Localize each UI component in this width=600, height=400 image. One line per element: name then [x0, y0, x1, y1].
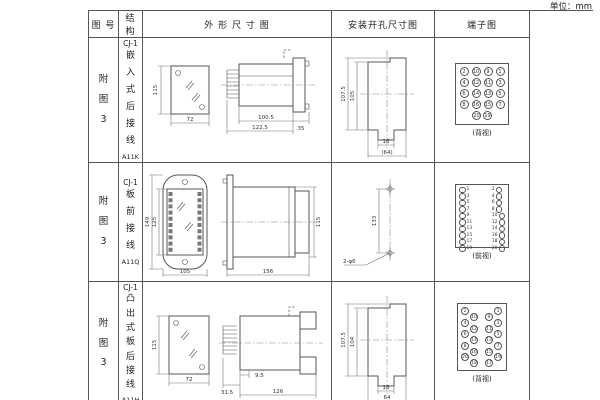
dim-inner-height: 125 — [152, 216, 158, 227]
terminal-pin: 5 — [496, 89, 505, 98]
cutout-drawing-a11k: 107.5 105 16 (64) — [332, 38, 434, 162]
dim-front-width: 72 — [187, 117, 194, 123]
header-row: 图 号 结 构 外 形 尺 寸 图 安装开孔尺寸图 端子图 — [89, 11, 530, 38]
outline-drawing-a11k: 115 72 100.5 — [143, 38, 331, 162]
terminal-pin: 10 — [470, 313, 478, 321]
terminal-diagram-a11k: 21091412113614135816157 2019 — [455, 63, 509, 125]
terminal-pin: 3 — [496, 78, 505, 87]
dim-step: 9.5 — [255, 373, 264, 379]
unit-divider — [527, 10, 593, 11]
terminal-pin: 16 — [472, 100, 481, 109]
terminal-pin: 15 — [484, 100, 493, 109]
outline-drawing-a11h: 115 72 9.5 31.5 — [143, 282, 331, 400]
series-label: CJ-1 — [119, 178, 142, 187]
terminal-pin: 20 — [461, 353, 469, 361]
dim-fin-depth: 31.5 — [221, 390, 234, 396]
model-label: A11K — [119, 153, 142, 161]
header-structure: 结 构 — [119, 11, 143, 38]
side-view: 156 115 — [221, 175, 322, 277]
terminal-pin: 1 — [496, 67, 505, 76]
terminal-cell: 21091412113614135816157 2019 (背视) — [435, 38, 530, 163]
terminal-view-label: (背视) — [435, 374, 529, 384]
dim-body-length: 100.5 — [258, 115, 274, 121]
structure-label: 凸出式板后接线 — [125, 292, 137, 393]
outline-cell: 149 125 105 — [143, 163, 332, 282]
terminal-col-left-inner: 1012141618 — [470, 313, 478, 367]
terminal-pin: 14 — [472, 89, 481, 98]
terminal-pin: 2 — [461, 307, 469, 315]
terminal-pin: 9 — [485, 313, 493, 321]
dim-front-height: 115 — [152, 339, 158, 350]
terminal-pin: 15 — [485, 348, 493, 356]
terminal-pin: 19 — [483, 111, 492, 120]
dim-front-height: 115 — [153, 84, 159, 95]
terminal-col-right-outer: 135719 — [494, 307, 502, 361]
terminal-pin: 13 — [485, 336, 493, 344]
terminal-pin: 19 — [459, 245, 472, 252]
terminal-pin: 7 — [494, 342, 502, 350]
table-row-a11k: 附图3 CJ-1 嵌入式后接线 A11K 115 — [89, 38, 530, 163]
terminal-pin: 12 — [470, 325, 478, 333]
terminal-pin: 1 — [494, 307, 502, 315]
structure-label: 嵌入式后接线 — [125, 48, 137, 151]
dim-cutout-h1: 107.5 — [341, 332, 347, 348]
dim-body-length: 126 — [273, 389, 284, 395]
side-view: 100.5 122.5 35 — [221, 50, 315, 134]
dim-flange-depth: 35 — [298, 126, 305, 132]
terminal-pin: 14 — [470, 336, 478, 344]
terminal-pin: 2 — [460, 67, 469, 76]
datasheet-table: 图 号 结 构 外 形 尺 寸 图 安装开孔尺寸图 端子图 附图3 CJ-1 嵌… — [88, 10, 530, 400]
outline-cell: 115 72 100.5 — [143, 38, 332, 163]
terminal-pin: 20 — [492, 245, 505, 252]
series-label: CJ-1 — [119, 283, 142, 292]
header-terminal: 端子图 — [435, 11, 530, 38]
cutout-drawing-a11q: 133 2-φ6 — [332, 163, 434, 281]
terminal-grid: 21091412113614135816157 — [459, 67, 506, 109]
dim-side-length: 156 — [263, 269, 274, 275]
table-row-a11h: 附图3 CJ-1 凸出式板后接线 A11H 115 — [89, 282, 530, 400]
terminal-pin: 17 — [485, 359, 493, 367]
terminal-pin: 3 — [494, 319, 502, 327]
terminal-pin: 6 — [461, 330, 469, 338]
terminal-diagram-a11q: 135791113151719 2468101214161820 — [455, 184, 509, 248]
outline-drawing-a11q: 149 125 105 — [143, 163, 331, 281]
fig-no: 附图3 — [98, 70, 110, 130]
terminal-pin: 8 — [460, 100, 469, 109]
terminal-pin: 13 — [484, 89, 493, 98]
model-label: A11H — [119, 396, 142, 400]
header-fig-no: 图 号 — [89, 11, 119, 38]
header-outline: 外 形 尺 寸 图 — [143, 11, 332, 38]
dim-cutout-h2: 104 — [350, 336, 356, 347]
terminal-diagram-a11h: 246820 1012141618 911131517 135719 — [457, 303, 507, 371]
dim-hole-distance: 133 — [372, 215, 378, 226]
terminal-bottom-row: 2019 — [472, 111, 492, 120]
dim-tab-width: 16 — [383, 385, 390, 391]
structure-cell: CJ-1 板前接线 A11Q — [119, 163, 143, 282]
front-view: 115 72 — [152, 316, 209, 386]
terminal-view-label: (背视) — [435, 128, 529, 138]
dim-front-width: 105 — [180, 269, 191, 275]
structure-cell: CJ-1 凸出式板后接线 A11H — [119, 282, 143, 400]
cutout-cell: 107.5 104 16 64 — [332, 282, 435, 400]
terminal-pin: 11 — [484, 78, 493, 87]
terminal-cell: 135791113151719 2468101214161820 (前视) — [435, 163, 530, 282]
cutout-cell: 107.5 105 16 (64) — [332, 38, 435, 163]
front-view: 149 125 105 — [145, 175, 207, 277]
dim-front-width: 72 — [186, 377, 193, 383]
terminal-pin: 18 — [470, 359, 478, 367]
terminal-pin: 5 — [494, 330, 502, 338]
terminal-pin: 12 — [472, 78, 481, 87]
fig-no: 附图3 — [98, 192, 110, 252]
dim-cutout-width: 64 — [384, 395, 391, 400]
terminal-pin: 16 — [470, 348, 478, 356]
outline-cell: 115 72 9.5 31.5 — [143, 282, 332, 400]
structure-label: 板前接线 — [125, 187, 137, 255]
terminal-cell: 246820 1012141618 911131517 135719 (背视) — [435, 282, 530, 400]
dim-cutout-width: (64) — [381, 150, 392, 156]
datasheet-page: 单位：mm 图 号 结 构 外 形 尺 寸 图 安装开孔尺寸图 端子图 附图3 … — [0, 0, 600, 400]
dim-hole-spec: 2-φ6 — [343, 259, 356, 265]
fig-no: 附图3 — [98, 314, 110, 374]
terminal-pin: 4 — [461, 319, 469, 327]
dim-cutout-h2: 105 — [350, 90, 356, 101]
side-view: 9.5 31.5 126 — [219, 307, 323, 398]
structure-cell: CJ-1 嵌入式后接线 A11K — [119, 38, 143, 163]
dim-outer-height: 149 — [145, 216, 151, 227]
terminal-pin: 20 — [472, 111, 481, 120]
terminal-col-left-outer: 246820 — [461, 307, 469, 361]
terminal-view-label: (前视) — [435, 251, 529, 261]
table-row-a11q: 附图3 CJ-1 板前接线 A11Q — [89, 163, 530, 282]
header-cutout: 安装开孔尺寸图 — [332, 11, 435, 38]
terminal-left-column: 135791113151719 — [459, 187, 472, 245]
dim-side-height: 115 — [316, 216, 322, 227]
terminal-pin: 4 — [460, 78, 469, 87]
cutout-drawing-a11h: 107.5 104 16 64 — [332, 282, 434, 400]
terminal-pin: 9 — [484, 67, 493, 76]
terminal-pin: 11 — [485, 325, 493, 333]
terminal-pin: 10 — [472, 67, 481, 76]
series-label: CJ-1 — [119, 39, 142, 48]
front-view: 115 72 — [153, 66, 209, 126]
dim-tab-width: 16 — [383, 139, 390, 145]
model-label: A11Q — [119, 258, 142, 266]
terminal-right-column: 2468101214161820 — [492, 187, 505, 245]
dim-total-length: 122.5 — [252, 125, 268, 131]
terminal-pin: 8 — [461, 342, 469, 350]
cutout-cell: 133 2-φ6 — [332, 163, 435, 282]
terminal-pin: 19 — [494, 353, 502, 361]
terminal-col-right-inner: 911131517 — [485, 313, 493, 367]
dim-cutout-h1: 107.5 — [341, 86, 347, 102]
terminal-pin: 6 — [460, 89, 469, 98]
terminal-pin: 7 — [496, 100, 505, 109]
